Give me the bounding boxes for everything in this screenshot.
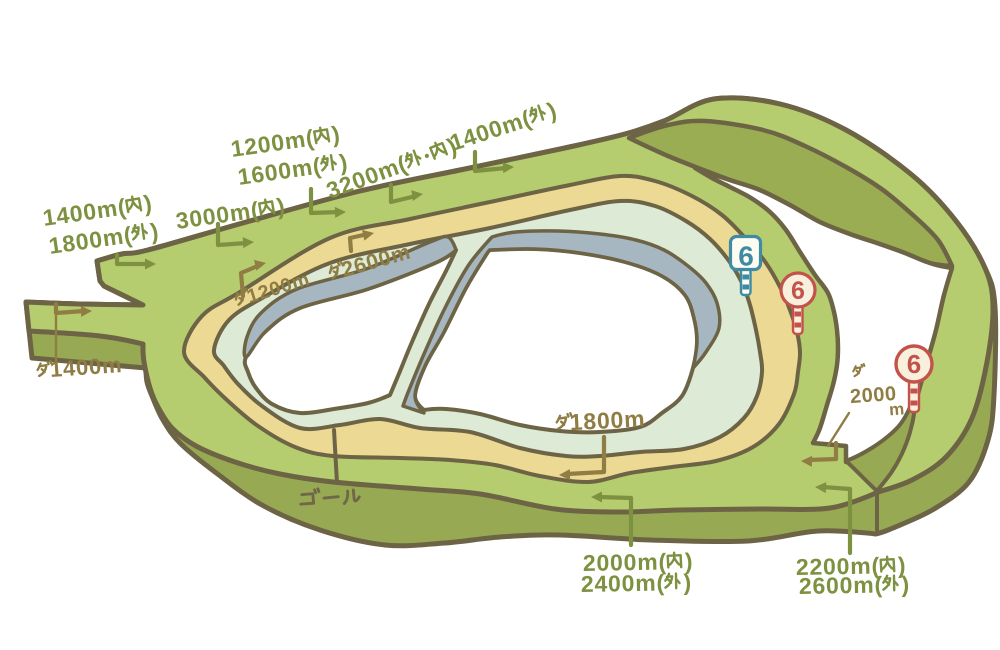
svg-text:1400m(: 1400m( xyxy=(447,105,535,156)
svg-text:2400m(: 2400m( xyxy=(581,570,666,597)
svg-text:2600m(: 2600m( xyxy=(799,572,884,599)
svg-text:): ) xyxy=(149,218,161,245)
svg-text:6: 6 xyxy=(738,241,754,272)
svg-text:1400m: 1400m xyxy=(49,352,123,382)
svg-text:): ) xyxy=(683,569,692,595)
svg-text:6: 6 xyxy=(791,277,805,305)
svg-text:6: 6 xyxy=(907,349,921,379)
svg-text:m: m xyxy=(888,399,904,419)
svg-text:): ) xyxy=(142,190,154,217)
svg-text:): ) xyxy=(544,97,560,124)
svg-text:): ) xyxy=(901,571,910,597)
svg-text:1800m: 1800m xyxy=(569,405,646,435)
svg-text:): ) xyxy=(330,121,342,148)
